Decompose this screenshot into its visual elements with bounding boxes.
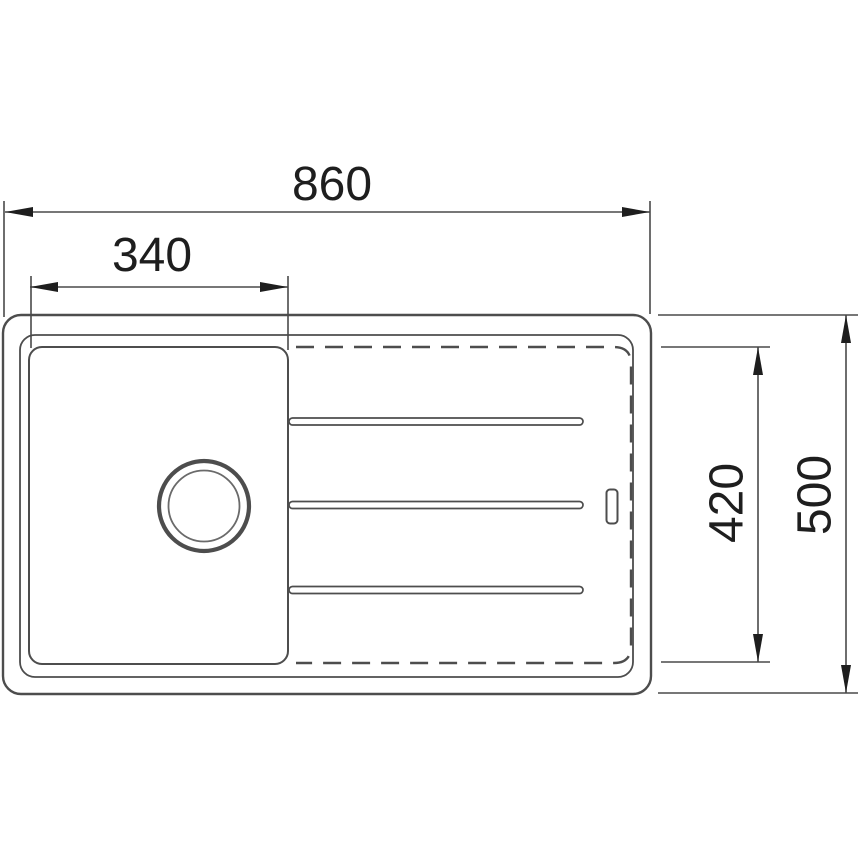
sink-body <box>3 315 651 694</box>
dimension-label-overall-width: 860 <box>292 158 372 211</box>
dimension-bowl-width: 340 <box>30 229 288 350</box>
tap-hole-slot <box>607 490 618 524</box>
arrowhead-right-icon <box>622 207 650 217</box>
drainer-area <box>289 347 631 663</box>
arrowhead-up-icon <box>753 347 763 375</box>
dimension-label-bowl-width: 340 <box>112 229 192 282</box>
drainer-rib-bottom <box>289 587 583 594</box>
dimension-overall-width: 860 <box>4 158 650 317</box>
drain <box>159 461 249 551</box>
arrowhead-down-icon <box>841 665 851 693</box>
dimension-label-drainer-depth: 420 <box>701 463 754 543</box>
arrowhead-right-icon <box>260 282 288 292</box>
arrowhead-left-icon <box>30 282 58 292</box>
drainer-rib-top <box>289 418 583 425</box>
arrowhead-left-icon <box>5 207 33 217</box>
drain-outer-ring <box>159 461 249 551</box>
dimension-drainer-depth: 420 <box>661 347 770 662</box>
dimension-label-overall-depth: 500 <box>789 455 842 535</box>
sink-dimension-drawing: 860 340 420 500 <box>0 0 860 860</box>
arrowhead-down-icon <box>753 634 763 662</box>
drainer-dashed-outline <box>296 347 631 663</box>
drain-inner-ring <box>169 471 240 542</box>
arrowhead-up-icon <box>841 315 851 343</box>
sink-outer-edge <box>3 315 651 694</box>
drawing-canvas: 860 340 420 500 <box>0 0 860 860</box>
drainer-rib-middle <box>289 502 583 509</box>
sink-rim-inner-edge <box>20 335 633 677</box>
